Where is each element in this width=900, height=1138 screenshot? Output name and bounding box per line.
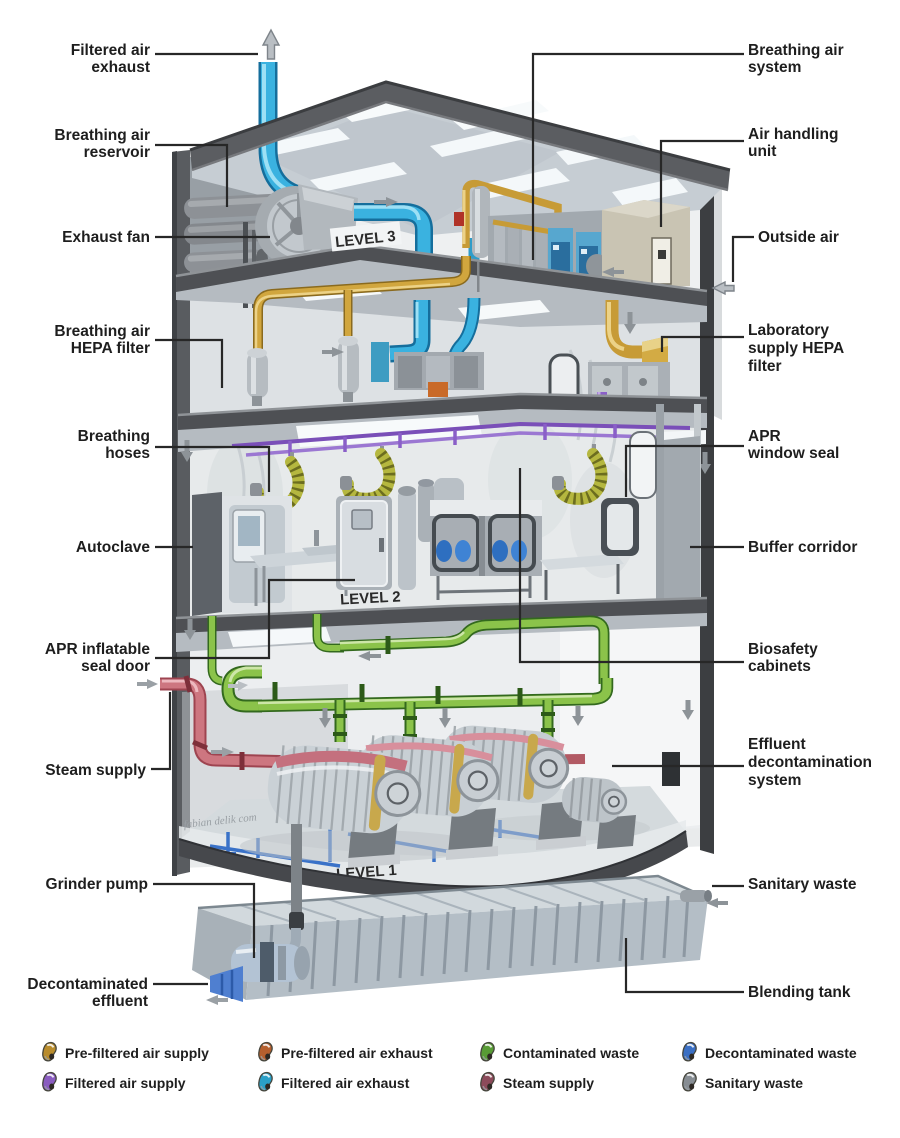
- svg-text:Buffer corridor: Buffer corridor: [748, 539, 857, 556]
- svg-text:Outside air: Outside air: [758, 229, 839, 246]
- svg-text:Pre-filtered air supply: Pre-filtered air supply: [65, 1045, 209, 1061]
- svg-text:reservoir: reservoir: [84, 144, 150, 161]
- svg-text:Sanitary waste: Sanitary waste: [748, 876, 857, 893]
- svg-text:Contaminated waste: Contaminated waste: [503, 1045, 639, 1061]
- svg-text:supply HEPA: supply HEPA: [748, 340, 844, 357]
- svg-text:window seal: window seal: [747, 445, 839, 462]
- svg-text:Biosafety: Biosafety: [748, 641, 818, 658]
- svg-text:Exhaust fan: Exhaust fan: [62, 229, 150, 246]
- svg-text:Autoclave: Autoclave: [76, 539, 150, 556]
- svg-text:Blending tank: Blending tank: [748, 984, 851, 1001]
- svg-text:effluent: effluent: [92, 993, 148, 1010]
- svg-text:Breathing air: Breathing air: [748, 42, 844, 59]
- svg-text:APR: APR: [748, 428, 781, 445]
- svg-text:exhaust: exhaust: [91, 59, 150, 76]
- svg-text:Breathing: Breathing: [78, 428, 150, 445]
- svg-text:Grinder pump: Grinder pump: [46, 876, 148, 893]
- svg-text:Sanitary waste: Sanitary waste: [705, 1075, 803, 1091]
- svg-text:APR inflatable: APR inflatable: [45, 641, 150, 658]
- svg-text:Breathing air: Breathing air: [54, 127, 150, 144]
- svg-text:Pre-filtered air exhaust: Pre-filtered air exhaust: [281, 1045, 433, 1061]
- svg-text:system: system: [748, 59, 801, 76]
- svg-text:Decontaminated: Decontaminated: [27, 976, 148, 993]
- svg-text:Filtered air: Filtered air: [71, 42, 150, 59]
- svg-text:decontamination: decontamination: [748, 754, 872, 771]
- svg-text:LEVEL 2: LEVEL 2: [340, 588, 401, 608]
- svg-text:HEPA filter: HEPA filter: [71, 340, 150, 357]
- svg-text:Steam supply: Steam supply: [503, 1075, 594, 1091]
- svg-text:seal door: seal door: [81, 658, 150, 675]
- svg-text:filter: filter: [748, 358, 782, 375]
- svg-text:Breathing air: Breathing air: [54, 323, 150, 340]
- svg-text:hoses: hoses: [105, 445, 150, 462]
- svg-text:unit: unit: [748, 143, 776, 160]
- svg-text:Laboratory: Laboratory: [748, 322, 829, 339]
- svg-text:Decontaminated waste: Decontaminated waste: [705, 1045, 857, 1061]
- svg-text:Filtered air supply: Filtered air supply: [65, 1075, 186, 1091]
- svg-text:cabinets: cabinets: [748, 658, 811, 675]
- svg-text:Steam supply: Steam supply: [45, 762, 146, 779]
- svg-text:system: system: [748, 772, 801, 789]
- svg-text:Effluent: Effluent: [748, 736, 806, 753]
- svg-text:Air handling: Air handling: [748, 126, 838, 143]
- svg-text:Filtered air exhaust: Filtered air exhaust: [281, 1075, 410, 1091]
